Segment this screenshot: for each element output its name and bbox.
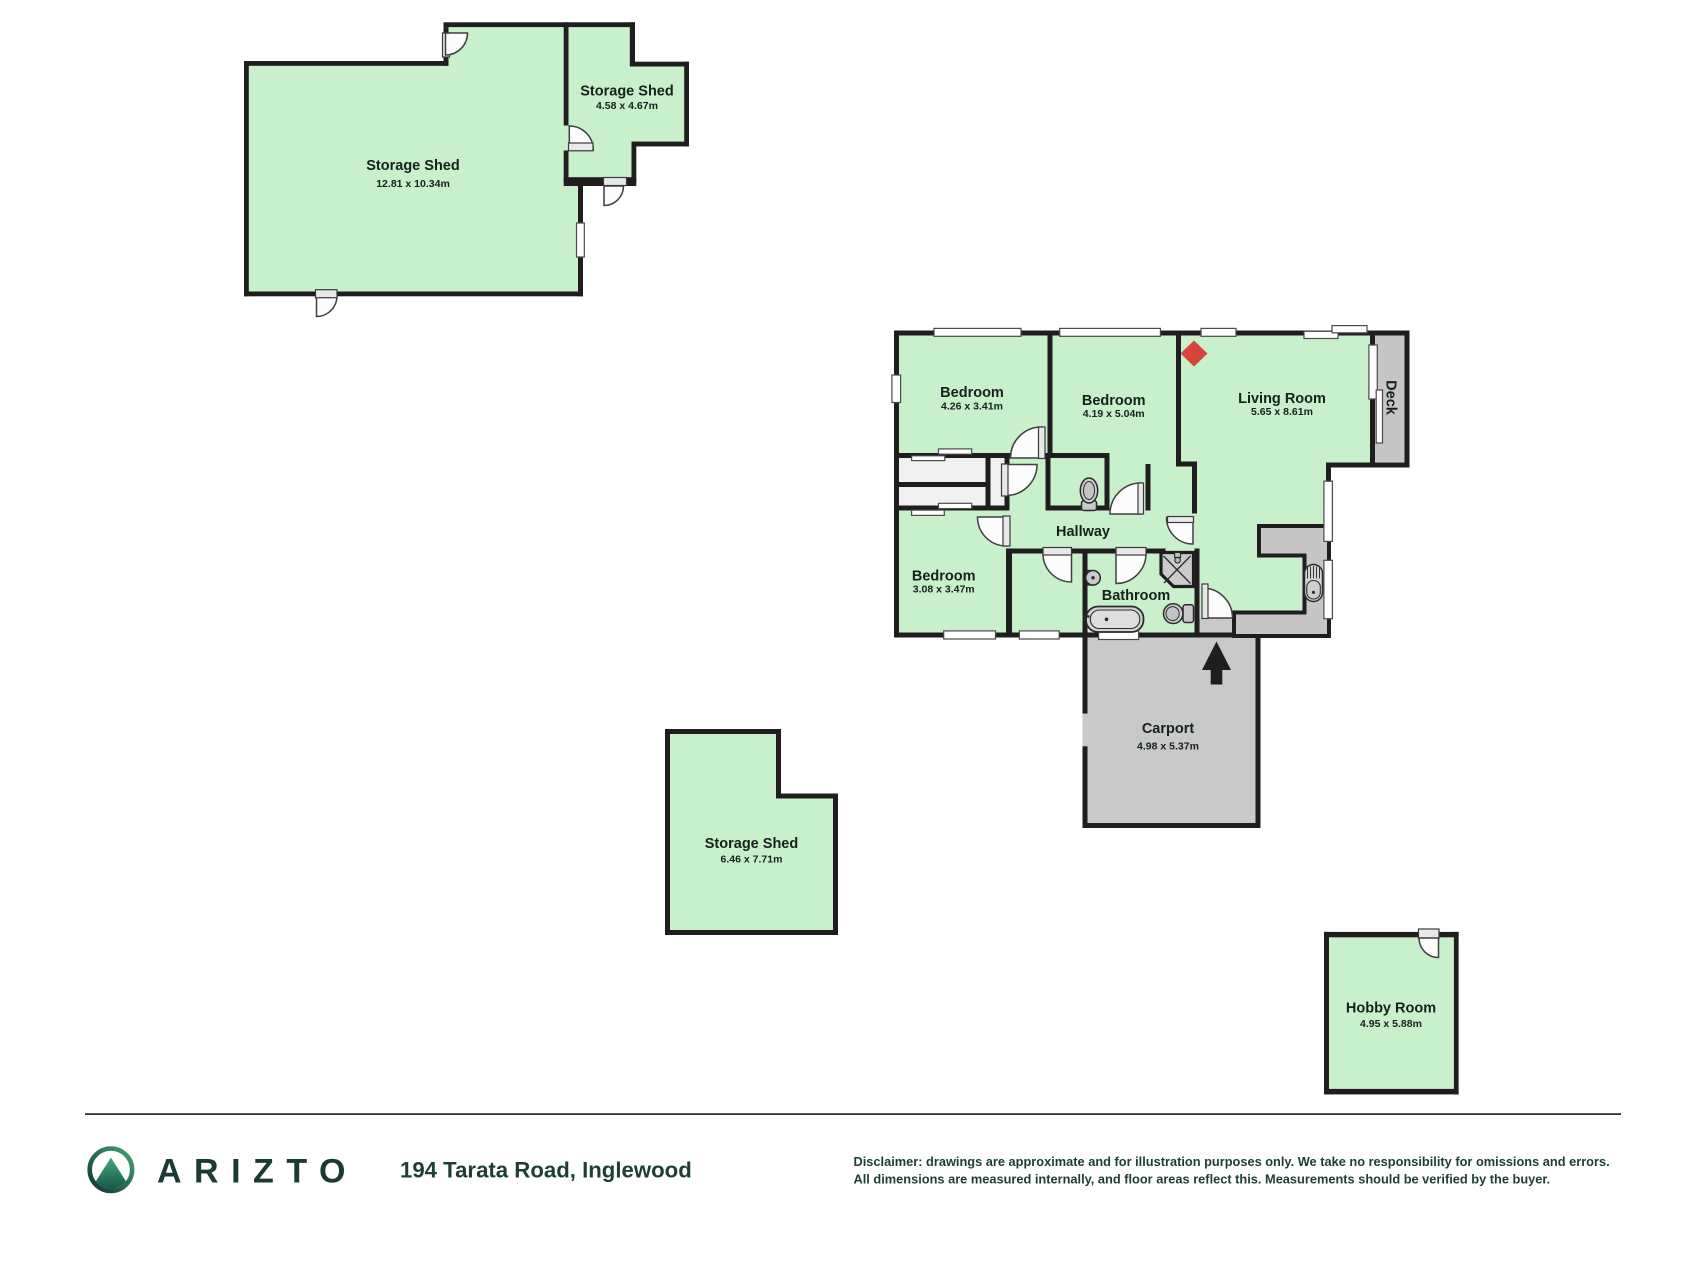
svg-text:Hobby Room: Hobby Room bbox=[1346, 1001, 1436, 1017]
svg-text:Storage Shed: Storage Shed bbox=[705, 836, 798, 852]
svg-text:Deck: Deck bbox=[1383, 380, 1399, 416]
svg-text:4.95 x 5.88m: 4.95 x 5.88m bbox=[1360, 1018, 1422, 1030]
svg-text:12.81 x 10.34m: 12.81 x 10.34m bbox=[376, 178, 450, 190]
svg-text:Bedroom: Bedroom bbox=[1082, 393, 1146, 409]
svg-text:Living Room: Living Room bbox=[1238, 391, 1326, 407]
svg-text:4.19 x 5.04m: 4.19 x 5.04m bbox=[1083, 408, 1145, 420]
svg-text:Carport: Carport bbox=[1142, 721, 1195, 737]
svg-text:All dimensions are measured in: All dimensions are measured internally, … bbox=[854, 1171, 1551, 1186]
svg-text:4.58 x 4.67m: 4.58 x 4.67m bbox=[596, 100, 658, 112]
svg-text:Bedroom: Bedroom bbox=[912, 569, 976, 585]
svg-text:4.26 x 3.41m: 4.26 x 3.41m bbox=[941, 401, 1003, 413]
svg-text:Storage Shed: Storage Shed bbox=[580, 84, 673, 100]
svg-text:194 Tarata Road, Inglewood: 194 Tarata Road, Inglewood bbox=[400, 1157, 692, 1182]
svg-text:Bathroom: Bathroom bbox=[1102, 588, 1170, 604]
svg-text:4.98 x 5.37m: 4.98 x 5.37m bbox=[1137, 741, 1199, 753]
svg-text:Disclaimer: drawings are appro: Disclaimer: drawings are approximate and… bbox=[854, 1154, 1610, 1169]
svg-text:Storage Shed: Storage Shed bbox=[366, 158, 459, 174]
svg-text:6.46 x 7.71m: 6.46 x 7.71m bbox=[721, 854, 783, 866]
svg-text:5.65 x 8.61m: 5.65 x 8.61m bbox=[1251, 406, 1313, 418]
svg-text:Bedroom: Bedroom bbox=[940, 385, 1004, 401]
svg-text:Hallway: Hallway bbox=[1056, 524, 1110, 540]
svg-text:ARIZTO: ARIZTO bbox=[157, 1153, 358, 1191]
svg-text:3.08 x 3.47m: 3.08 x 3.47m bbox=[913, 584, 975, 596]
